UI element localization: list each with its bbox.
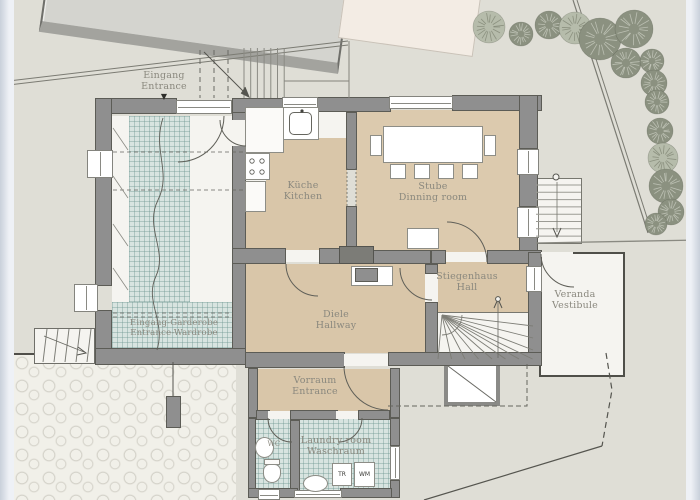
wall xyxy=(248,418,256,498)
wall xyxy=(346,112,357,170)
wall xyxy=(390,368,400,418)
tiled-stove xyxy=(407,228,439,249)
kitchen-counter xyxy=(245,107,284,153)
label-en: Kitchen xyxy=(284,191,323,202)
chair xyxy=(370,135,382,156)
label-en: Vestibule xyxy=(552,300,598,311)
room-label-entrance: Eingang Entrance xyxy=(141,70,187,93)
window xyxy=(517,207,539,238)
wall xyxy=(245,352,345,368)
door-gap xyxy=(232,120,246,146)
chair xyxy=(414,164,430,179)
page-edge-right xyxy=(686,0,700,500)
room-label-garderobe: Eingang-Garderobe Entrance-Wardrobe xyxy=(130,318,218,338)
washing-machine: WM xyxy=(354,462,375,487)
courtyard-paving xyxy=(14,353,236,500)
label-de: Waschraum xyxy=(301,446,372,457)
neighbor-roof xyxy=(338,0,487,57)
label-en: Hallway xyxy=(316,320,357,331)
wall xyxy=(95,98,112,152)
room-label-vorraum: Vorraum Entrance xyxy=(292,375,338,398)
window xyxy=(517,149,539,175)
room-label-stiegenhaus: Stiegenhaus Hall xyxy=(436,271,498,294)
label-de: Diele xyxy=(323,309,349,320)
wall xyxy=(290,410,338,420)
room-kitchen-floor2 xyxy=(245,212,266,252)
label-en: Entrance xyxy=(292,386,338,397)
door-gap xyxy=(336,411,358,419)
toilet xyxy=(263,464,281,483)
wall xyxy=(519,173,538,207)
room-label-kitchen: Küche Kitchen xyxy=(284,180,323,203)
window xyxy=(390,446,400,480)
stove xyxy=(245,153,270,180)
label-de: Küche xyxy=(287,180,318,191)
label-de: Veranda xyxy=(554,289,595,300)
label-wc: WC xyxy=(268,440,281,448)
door-gap xyxy=(446,252,487,262)
laundry-sink xyxy=(303,475,328,492)
door-gap xyxy=(268,411,290,419)
wall xyxy=(317,97,391,112)
label-de: Eingang xyxy=(143,70,184,81)
wall xyxy=(95,176,112,286)
light-well xyxy=(444,362,500,406)
corridor-tiles xyxy=(129,116,190,302)
wall xyxy=(431,250,446,264)
wall xyxy=(358,410,390,420)
window xyxy=(87,150,113,178)
label-de: Vorraum xyxy=(294,375,337,386)
courtyard-stair xyxy=(34,328,95,364)
page-edge-left xyxy=(0,0,14,500)
chair xyxy=(390,164,406,179)
wall xyxy=(232,112,246,354)
wall xyxy=(388,352,542,366)
wall xyxy=(390,418,400,446)
wall xyxy=(95,348,246,365)
room-label-wc: WC xyxy=(268,440,281,448)
wall xyxy=(290,420,300,498)
entrance-arrow-icon: ▼ xyxy=(161,92,167,102)
kitchen-counter xyxy=(245,181,266,212)
dining-table xyxy=(383,126,483,163)
door-gap xyxy=(344,354,388,366)
label-de: Stiegenhaus xyxy=(436,271,498,282)
label-en: Laundry room xyxy=(301,435,372,446)
room-label-veranda: Veranda Vestibule xyxy=(552,289,598,312)
door-gap xyxy=(541,252,573,257)
dryer-label: TR xyxy=(338,471,346,478)
floor-plan: TR WM Eingang Entrance ▼ Küche Kitchen S… xyxy=(0,0,700,500)
corridor-floor xyxy=(190,116,233,302)
wall xyxy=(519,95,538,149)
label-en: Dinning room xyxy=(399,192,468,203)
room-veranda-floor xyxy=(539,252,625,377)
label-de: Stube xyxy=(418,181,447,192)
label-en: Hall xyxy=(436,282,498,293)
room-label-stube: Stube Dinning room xyxy=(399,181,468,204)
neighbor-building xyxy=(39,0,355,74)
chair xyxy=(484,135,496,156)
label-en: Entrance-Wardrobe xyxy=(130,328,218,338)
room-label-laundry: Laundry room Waschraum xyxy=(301,435,372,458)
courtyard-pillar xyxy=(166,396,181,428)
chimney-niche-core xyxy=(355,268,378,282)
room-label-diele: Diele Hallway xyxy=(316,309,357,332)
window xyxy=(526,266,542,292)
chair xyxy=(438,164,454,179)
washer-label: WM xyxy=(359,471,370,478)
entrance-threshold xyxy=(176,100,232,114)
chimney xyxy=(339,246,374,264)
label-de: Eingang-Garderobe xyxy=(130,318,218,328)
wall xyxy=(340,488,392,498)
exterior-stair xyxy=(535,178,582,244)
window xyxy=(74,284,98,312)
corridor-ramp xyxy=(112,116,129,304)
door-gap xyxy=(286,250,319,262)
wall xyxy=(425,302,438,354)
dryer: TR xyxy=(332,463,352,486)
window xyxy=(389,96,453,109)
wall xyxy=(232,248,286,264)
chair xyxy=(462,164,478,179)
kitchen-sink-basin xyxy=(289,112,312,135)
wc-threshold xyxy=(258,489,280,500)
arrow-glyph: ▼ xyxy=(161,92,167,101)
